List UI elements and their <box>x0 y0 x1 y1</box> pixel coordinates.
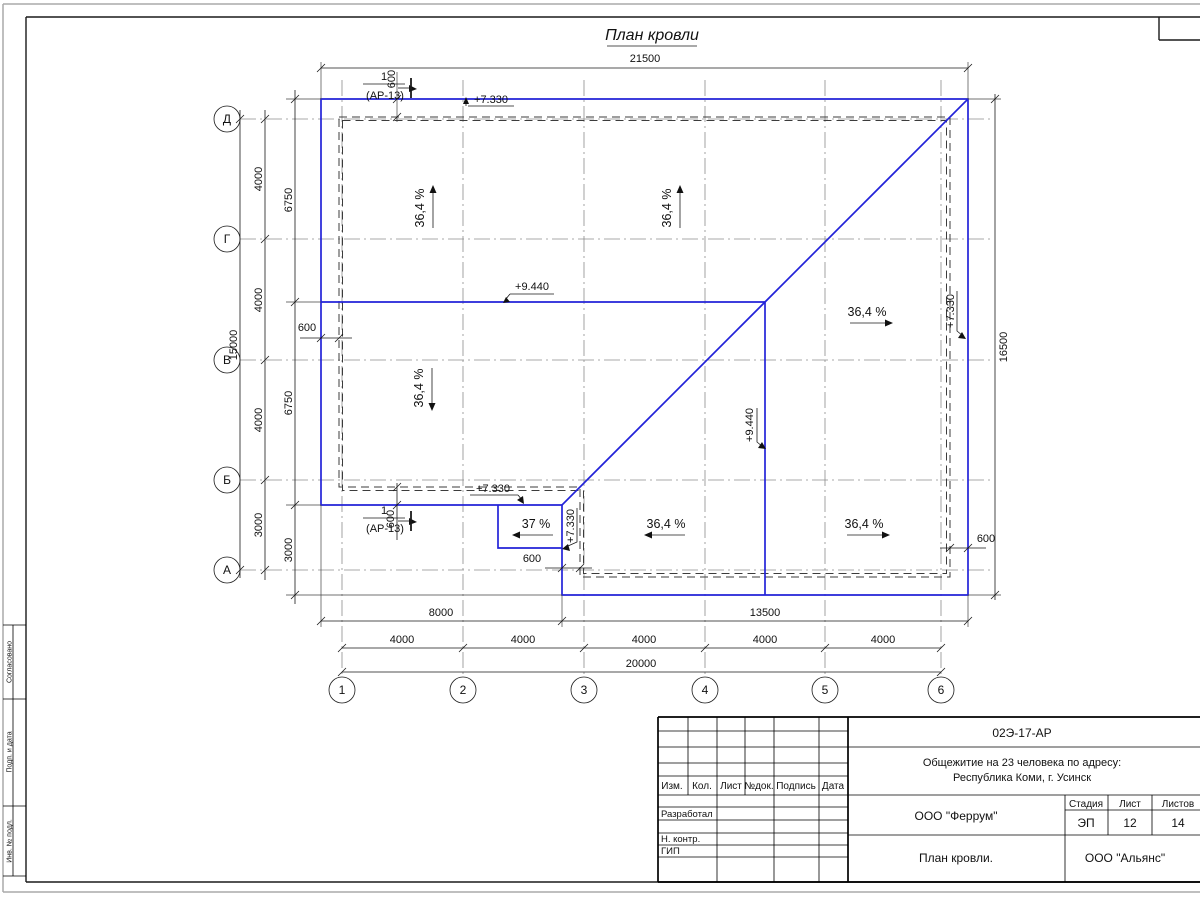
revision-header-cell: Дата <box>822 781 845 792</box>
dim-right-total: 16500 <box>998 332 1010 363</box>
dim-left: 4000 <box>253 288 265 312</box>
dim-offset-600: 600 <box>386 70 398 88</box>
dim-bay: 4000 <box>753 634 777 646</box>
dim-bay: 4000 <box>871 634 895 646</box>
role-label: Н. контр. <box>661 834 700 845</box>
side-stamp-label: Подп. и дата <box>7 731 14 772</box>
section-number: 1 <box>381 505 387 517</box>
project-name-line1: Общежитие на 23 человека по адресу: <box>923 757 1121 769</box>
revision-header-cell: Изм. <box>661 781 682 792</box>
dim-bottom-total: 20000 <box>626 658 657 670</box>
roof-plan-drawing: Согласовано Подп. и дата Инв. № подл. Пл… <box>0 0 1200 900</box>
stage-header: Стадия <box>1069 799 1103 810</box>
dim-left: 4000 <box>253 167 265 191</box>
elevation-label: +9.440 <box>515 281 549 293</box>
dim-offset-600: 600 <box>977 533 995 545</box>
dim-top-total: 21500 <box>630 53 661 65</box>
axis-label: 3 <box>581 683 588 697</box>
wall-dashed-lines <box>339 117 950 577</box>
dim-offset-600: 600 <box>298 322 316 334</box>
side-stamp-label: Согласовано <box>7 641 14 683</box>
slope-label: 36,4 % <box>412 369 426 408</box>
axis-grid <box>240 80 990 677</box>
slope-label: 36,4 % <box>845 517 884 531</box>
revision-header-cell: Подпись <box>776 781 816 792</box>
axis-label: А <box>223 563 231 577</box>
slope-label: 36,4 % <box>848 305 887 319</box>
document-number: 02Э-17-АР <box>992 726 1051 740</box>
dim-offset-600: 600 <box>523 553 541 565</box>
section-number: 1 <box>381 71 387 83</box>
axis-label: В <box>223 353 231 367</box>
dim-bay: 4000 <box>390 634 414 646</box>
contractor-org: ООО "Альянс" <box>1085 851 1165 865</box>
corner-stamp-box <box>1159 17 1200 40</box>
axis-label: 2 <box>460 683 467 697</box>
dim-inner: 3000 <box>283 538 295 562</box>
slope-label-low: 37 % <box>522 517 551 531</box>
revision-header-cell: Лист <box>720 781 742 792</box>
slope-label: 36,4 % <box>647 517 686 531</box>
axis-label: Б <box>223 473 231 487</box>
dimension-lines <box>240 68 995 672</box>
elevation-label: +7.330 <box>476 483 510 495</box>
slope-label: 36,4 % <box>413 189 427 228</box>
dim-inner: 6750 <box>283 188 295 212</box>
section-sheet-ref: (АР-13) <box>366 523 404 535</box>
extension-lines <box>286 62 1001 627</box>
dim-bay: 4000 <box>511 634 535 646</box>
revision-header-cell: №док. <box>744 781 773 792</box>
dimension-ticks <box>236 64 999 676</box>
elevation-label: +7.330 <box>474 94 508 106</box>
revision-header-cell: Кол. <box>692 781 712 792</box>
axis-label: 4 <box>702 683 709 697</box>
elevation-label: +7.330 <box>565 509 577 543</box>
drawing-sheet: Согласовано Подп. и дата Инв. № подл. Пл… <box>0 0 1200 900</box>
page-title: План кровли <box>605 27 699 44</box>
axis-label: 6 <box>938 683 945 697</box>
dim-left: 3000 <box>253 513 265 537</box>
sheets-value: 14 <box>1171 816 1185 830</box>
sheet-header: Лист <box>1119 799 1141 810</box>
project-name-line2: Республика Коми, г. Усинск <box>953 772 1091 784</box>
dimension-labels: 21500 4000 4000 4000 3000 15000 6750 675… <box>228 53 1010 670</box>
role-label: Разработал <box>661 809 713 820</box>
slope-label: 36,4 % <box>660 189 674 228</box>
axis-label: 5 <box>822 683 829 697</box>
elevation-label: +9.440 <box>744 408 756 442</box>
side-stamp: Согласовано Подп. и дата Инв. № подл. <box>3 625 26 876</box>
elevation-label: +7.330 <box>945 294 957 328</box>
drawing-title: План кровли. <box>919 851 993 865</box>
design-org: ООО "Феррум" <box>915 809 998 823</box>
axis-bubbles-bottom: 1 2 3 4 5 6 <box>329 677 954 703</box>
dim-bottom: 8000 <box>429 607 453 619</box>
sheet-value: 12 <box>1123 816 1137 830</box>
side-stamp-label: Инв. № подл. <box>7 819 14 863</box>
dim-bottom: 13500 <box>750 607 781 619</box>
dim-bay: 4000 <box>632 634 656 646</box>
dim-left: 4000 <box>253 408 265 432</box>
title-block: Изм. Кол. Лист №док. Подпись Дата Разраб… <box>658 717 1200 882</box>
role-label: ГИП <box>661 846 680 857</box>
section-sheet-ref: (АР-13) <box>366 90 404 102</box>
stage-value: ЭП <box>1077 816 1094 830</box>
dim-inner: 6750 <box>283 391 295 415</box>
axis-label: Д <box>223 112 231 126</box>
axis-label: 1 <box>339 683 346 697</box>
sheets-header: Листов <box>1162 799 1195 810</box>
axis-label: Г <box>224 232 231 246</box>
